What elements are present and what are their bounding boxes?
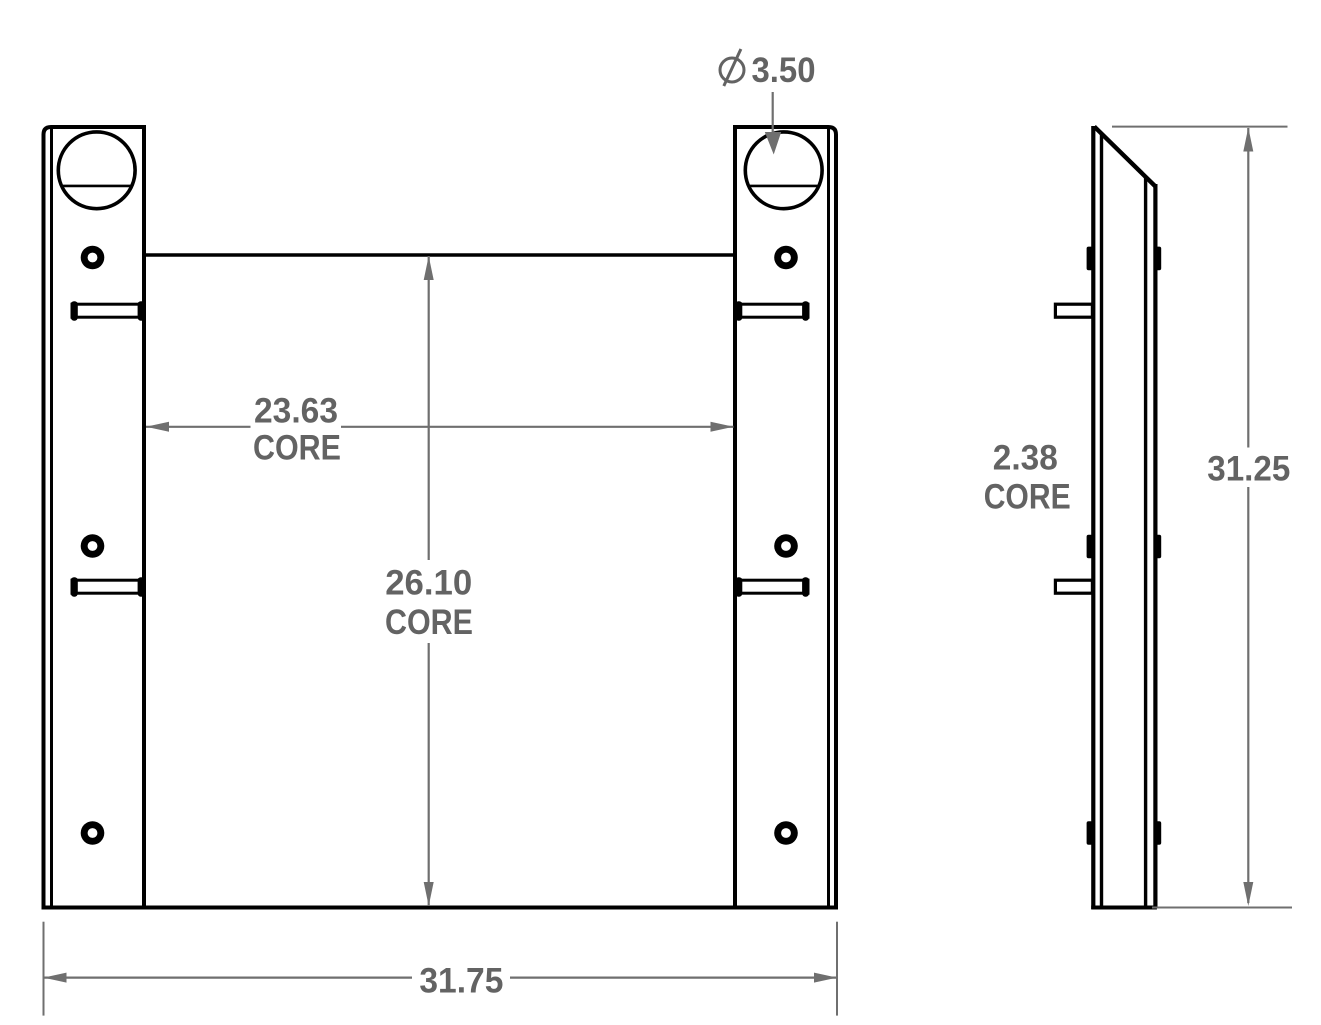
- svg-text:3.50: 3.50: [752, 50, 816, 90]
- svg-text:31.25: 31.25: [1207, 449, 1290, 489]
- svg-text:CORE: CORE: [253, 428, 341, 468]
- svg-text:23.63: 23.63: [254, 390, 338, 430]
- svg-text:26.10: 26.10: [385, 563, 472, 603]
- svg-text:CORE: CORE: [385, 602, 473, 642]
- svg-text:2.38: 2.38: [993, 437, 1058, 477]
- svg-text:CORE: CORE: [984, 476, 1071, 516]
- svg-text:31.75: 31.75: [419, 960, 503, 1000]
